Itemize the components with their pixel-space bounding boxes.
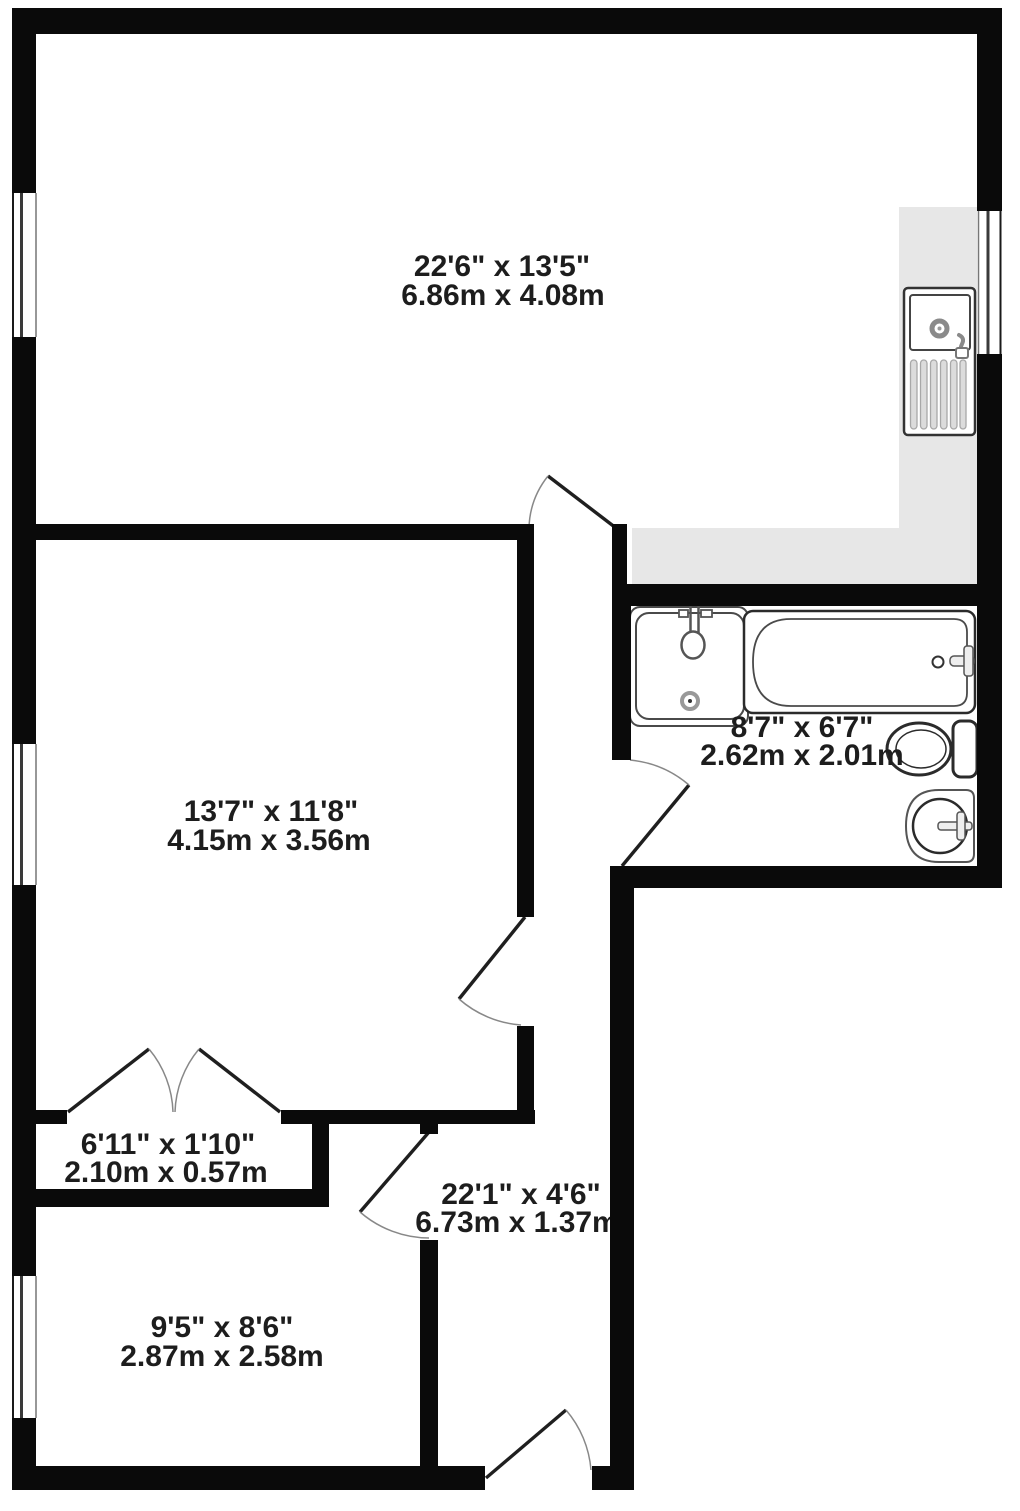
svg-text:2.87m x 2.58m: 2.87m x 2.58m	[120, 1340, 323, 1373]
svg-text:2.62m x 2.01m: 2.62m x 2.01m	[700, 739, 903, 772]
svg-text:6.73m x 1.37m: 6.73m x 1.37m	[415, 1206, 618, 1239]
svg-text:6.86m x 4.08m: 6.86m x 4.08m	[401, 279, 604, 312]
svg-text:4.15m x 3.56m: 4.15m x 3.56m	[167, 824, 370, 857]
svg-text:2.10m x 0.57m: 2.10m x 0.57m	[64, 1156, 267, 1189]
